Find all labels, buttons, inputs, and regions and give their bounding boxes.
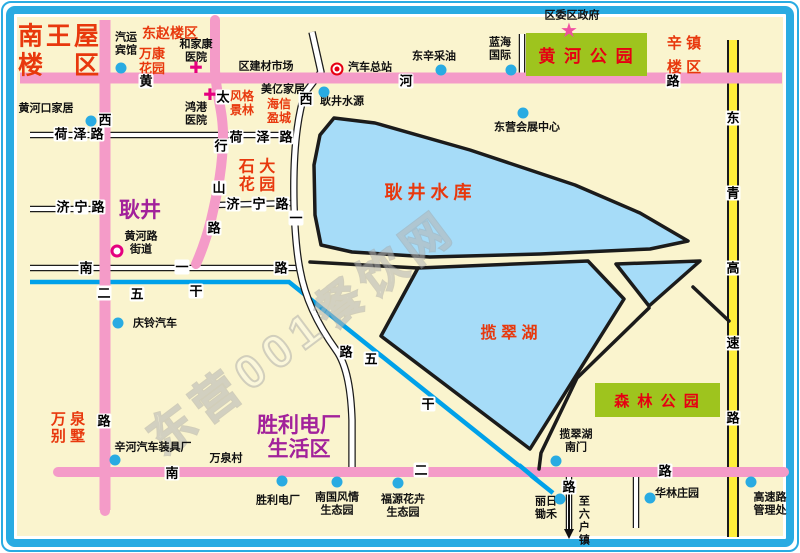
dongqing-expressway-char-3: 速 [725,336,740,351]
dongqing-expressway-char-2: 高 [725,261,740,276]
poi-gengjing-shuiyuan: 耿井水源 [320,96,364,109]
poi-qiyun-binguan: 汽运宾馆 [115,31,137,56]
nan-er-road-char-1: 二 [413,463,428,478]
heze-road-east-char-2: 路 [278,130,293,145]
xi-yi-road-char-1: 一 [288,211,303,226]
nan-er-road-char-0: 南 [164,466,179,481]
xi-er-road-char-0: 西 [97,113,112,128]
poi-qingling-qiche: 庆铃汽车 [133,318,177,331]
poi-gaosulu-guanlichu: 高速路管理处 [754,491,787,516]
poi-huanghekou-jiaju: 黄河口家居 [19,103,74,116]
jining-road-east-char-0: 济 [225,197,240,212]
liuhuzhen-road-char-0: 路 [561,480,576,495]
area-haixin-yingcheng: 海信盈城 [267,98,291,126]
poi-zhi-liuhuzhen: 至六户镇 [577,495,590,547]
wugan-canal-west-char-1: 干 [188,284,203,299]
heze-road-east-char-0: 荷 [228,130,243,145]
poi-qiche-zongzhan-bus-station-icon [331,63,344,76]
poi-qu-jiancai-shichang: 区建材市场 [239,61,294,74]
area-gengjing: 耿井 [119,199,161,223]
poi-qiche-zongzhan: 汽车总站 [348,62,392,75]
nan-er-road-char-2: 路 [657,464,672,479]
poi-lanhai-guoji-dot-marker [506,65,517,76]
poi-qingling-qiche-dot-marker [113,318,124,329]
forest-park-label: 森 林 公 园 [614,390,701,411]
poi-shengli-dianchang-dot-marker [277,476,288,487]
jining-road-east-char-1: 宁 [251,197,266,212]
xi-yi-road-char-0: 西 [298,92,313,107]
map-page: 东营001餐饮网 黄 河 公 园森 林 公 园南王屋楼 区东赵楼区万康花园风格景… [0,0,800,553]
poi-xinhe-qiche-zhuangjuchang: 辛河汽车装具厂 [115,442,192,455]
poi-qiyun-binguan-dot-marker [116,63,127,74]
poi-gengjing-shuiyuan-dot-marker [319,87,330,98]
area-shida-huayuan: 石 大花 园 [239,159,275,196]
xi-er-road-char-2: 路 [96,414,111,429]
xi-er-road-char-1: 二 [96,286,111,301]
dongqing-expressway-char-1: 青 [725,186,740,201]
forest-park: 森 林 公 园 [595,383,720,417]
poi-dongying-huizhan-zhongxin-dot-marker [518,108,529,119]
area-fengge-jinglin: 风格景林 [230,90,254,118]
heze-road-west-char-1: 泽 [72,127,87,142]
poi-huanghelu-jiedao-ring-marker [111,245,124,258]
poi-fuyuan-huahui-dot-marker [393,478,404,489]
poi-honggang-yiyuan: 鸿港医院 [185,101,207,126]
poi-lancuihu-nanmen: 揽翠湖南门 [560,428,593,453]
heze-road-east-char-1: 泽 [255,130,270,145]
nan-yi-road-char-0: 南 [78,261,93,276]
poi-lancuihu-nanmen-dot-marker [551,456,562,467]
poi-wanquancun: 万泉村 [210,453,243,466]
label-lancui-lake: 揽 翠 湖 [481,325,538,343]
wugan-canal-east-char-1: 干 [420,397,435,412]
jining-road-west-char-1: 宁 [73,200,88,215]
taihangshan-road-char-3: 路 [206,221,221,236]
area-nanwangwu-louqu: 南王屋楼 区 [18,22,102,80]
poi-shengli-dianchang: 胜利电厂 [256,495,300,508]
taihangshan-road-char-2: 山 [211,181,226,196]
xi-yi-road-char-2: 路 [338,345,353,360]
nan-yi-road-char-1: 一 [174,260,189,275]
poi-xinhe-qiche-zhuangjuchang-dot-marker [110,455,121,466]
jining-road-west-char-0: 济 [55,200,70,215]
wugan-canal-east-char-0: 五 [363,352,378,367]
jining-road-east-char-2: 路 [274,197,289,212]
poi-dongying-huizhan-zhongxin: 东营会展中心 [494,122,560,135]
label-gengjing-reservoir: 耿 井 水 库 [384,183,471,204]
poi-quwei-quzhengfu-star-icon: ★ [560,21,578,41]
huanghe-park: 黄 河 公 园 [526,33,647,76]
heze-road-west-char-2: 路 [89,127,104,142]
nan-yi-road-char-2: 路 [273,261,288,276]
area-shengli-dianchang-shenghuoqu: 胜利电厂生活区 [257,414,341,462]
poi-huanghelu-jiedao: 黄河路街道 [125,230,158,255]
poi-nanguo-fengqing: 南国风情生态园 [315,491,359,516]
heze-road-west-char-0: 荷 [53,127,68,142]
wugan-canal-west-char-0: 五 [129,287,144,302]
area-wanquan-bieshu: 万 泉别 墅 [51,411,85,446]
huanghe-road-char-0: 黄 [138,74,153,89]
huanghe-road-char-1: 河 [398,74,413,89]
huanghe-road-char-2: 路 [665,74,680,89]
poi-fuyuan-huahui: 福源花卉生态园 [381,493,425,518]
poi-nanguo-fengqing-dot-marker [332,477,343,488]
labels-layer: 黄 河 公 园森 林 公 园南王屋楼 区东赵楼区万康花园风格景林海信盈城石 大花… [0,0,800,553]
taihangshan-road-char-0: 太 [215,90,230,105]
poi-dongxin-caiyou: 东辛采油 [412,51,456,64]
poi-dongxin-caiyou-dot-marker [436,65,447,76]
dongqing-expressway-char-4: 路 [725,411,740,426]
dongqing-expressway-char-0: 东 [725,111,740,126]
poi-hualin-zhuangyuan: 华林庄园 [655,488,699,501]
poi-lanhai-guoji: 蓝海国际 [489,36,511,61]
jining-road-west-char-2: 路 [90,200,105,215]
area-wankang-huayuan: 万康花园 [139,47,165,77]
poi-liri-chuhe-dot-marker [555,494,566,505]
taihangshan-road-char-1: 行 [213,139,228,154]
poi-hejiakang-yiyuan-cross-icon: ✚ [189,61,202,77]
huanghe-park-label: 黄 河 公 园 [538,42,634,67]
poi-gaosulu-guanlichu-dot-marker [746,477,757,488]
poi-huanghekou-jiaju-dot-marker [86,116,97,127]
poi-hualin-zhuangyuan-dot-marker [645,493,656,504]
